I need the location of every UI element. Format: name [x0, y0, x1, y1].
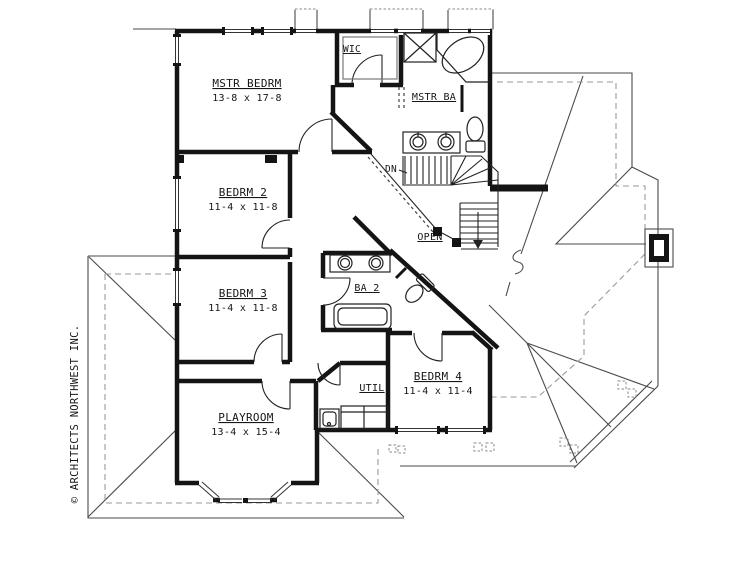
room-label-playroom: PLAYROOM: [218, 411, 273, 424]
master-bath-pocket-door: [399, 87, 404, 111]
open-to-below-label: OPEN: [417, 232, 442, 243]
master-tub: [436, 30, 491, 82]
room-dims-bedroom2: 11-4 x 11-8: [208, 202, 278, 213]
bath2-vanity: [330, 255, 390, 272]
room-dims-playroom: 13-4 x 15-4: [211, 427, 281, 438]
master-vanity: [403, 132, 460, 153]
floor-plan-sheet: MSTR BEDRM 13-8 x 17-8 WIC MSTR BA DN OP…: [0, 0, 750, 584]
window: [449, 27, 468, 35]
bay-window: [199, 482, 291, 503]
bedroom3-door: [254, 334, 282, 362]
master-bedroom-door: [299, 119, 332, 152]
window: [398, 27, 421, 35]
utility-sink: [320, 409, 339, 429]
bath2-tub: [334, 304, 391, 329]
window: [222, 27, 254, 35]
room-label-bedroom4: BEDRM 4: [414, 370, 463, 383]
window: [395, 426, 440, 434]
room-dims-master-bedroom: 13-8 x 17-8: [212, 93, 282, 104]
upper-window-bays: [295, 9, 493, 29]
window: [296, 27, 316, 35]
window: [371, 27, 394, 35]
window: [173, 34, 181, 66]
fixtures: [320, 30, 490, 429]
window: [471, 27, 490, 35]
window: [173, 268, 181, 306]
bedroom2-door: [262, 220, 290, 248]
window: [173, 176, 181, 232]
doors: [254, 55, 442, 409]
shower: [404, 33, 436, 62]
room-dims-bedroom3: 11-4 x 11-8: [208, 303, 278, 314]
room-label-wic: WIC: [343, 44, 361, 55]
bath2-toilet: [401, 273, 435, 307]
wic-door: [352, 55, 382, 85]
stairs-down-label: DN: [385, 164, 397, 175]
room-label-bath2: BA 2: [354, 283, 379, 294]
room-dims-bedroom4: 11-4 x 11-4: [403, 386, 473, 397]
bedroom4-door: [414, 333, 442, 361]
master-toilet: [466, 117, 485, 152]
copyright-text: © ARCHITECTS NORTHWEST INC.: [69, 325, 81, 504]
room-label-bedroom2: BEDRM 2: [219, 186, 267, 199]
closet-return-stub: [265, 155, 277, 163]
room-label-master-bath: MSTR BA: [412, 92, 456, 103]
washer-dryer: [341, 406, 388, 429]
bath2-door: [323, 278, 350, 305]
room-label-utility: UTIL: [359, 383, 384, 394]
chimney: [645, 229, 673, 267]
playroom-door: [262, 381, 290, 409]
room-label-bedroom3: BEDRM 3: [219, 287, 267, 300]
floor-plan-drawing: MSTR BEDRM 13-8 x 17-8 WIC MSTR BA DN OP…: [0, 0, 750, 584]
closet-return-stub: [177, 155, 184, 163]
window: [445, 426, 486, 434]
room-label-master-bedroom: MSTR BEDRM: [212, 77, 281, 90]
window: [261, 27, 293, 35]
